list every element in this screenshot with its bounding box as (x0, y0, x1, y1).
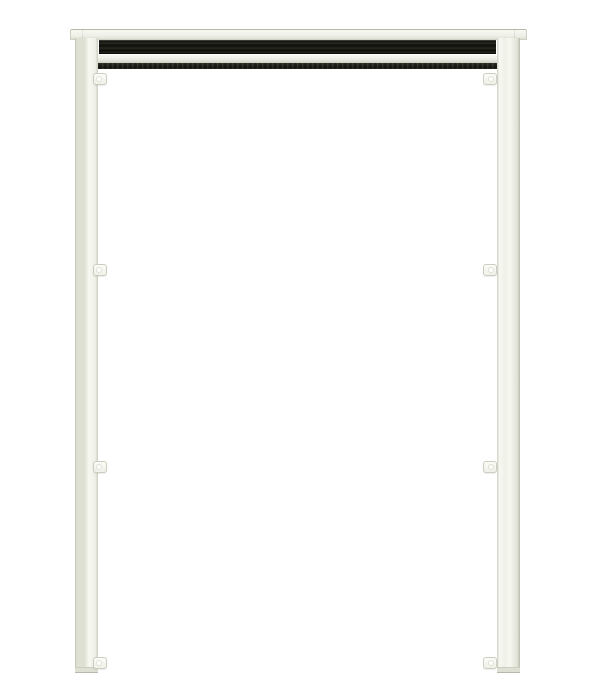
mounting-clip-left (93, 264, 107, 276)
side-rail-right (497, 38, 520, 673)
clip-screw-hole (488, 464, 494, 470)
mounting-clip-right (483, 264, 497, 276)
clip-screw-hole (96, 660, 102, 666)
mounting-clip-right (483, 461, 497, 473)
header-top-cap (70, 29, 527, 40)
housing-bottom-bar (85, 54, 515, 63)
mounting-clip-right (483, 73, 497, 85)
product-image-canvas (0, 0, 600, 700)
clip-screw-hole (488, 660, 494, 666)
mounting-clip-left (93, 657, 107, 669)
mounting-clip-right (483, 657, 497, 669)
mounting-clip-left (93, 461, 107, 473)
brush-seal-strip (87, 63, 513, 69)
clip-screw-hole (96, 76, 102, 82)
mounting-clip-left (93, 73, 107, 85)
roller-housing-black-band (99, 40, 496, 54)
clip-screw-hole (488, 267, 494, 273)
clip-screw-hole (96, 464, 102, 470)
clip-screw-hole (488, 76, 494, 82)
side-rail-left (75, 38, 98, 673)
clip-screw-hole (96, 267, 102, 273)
